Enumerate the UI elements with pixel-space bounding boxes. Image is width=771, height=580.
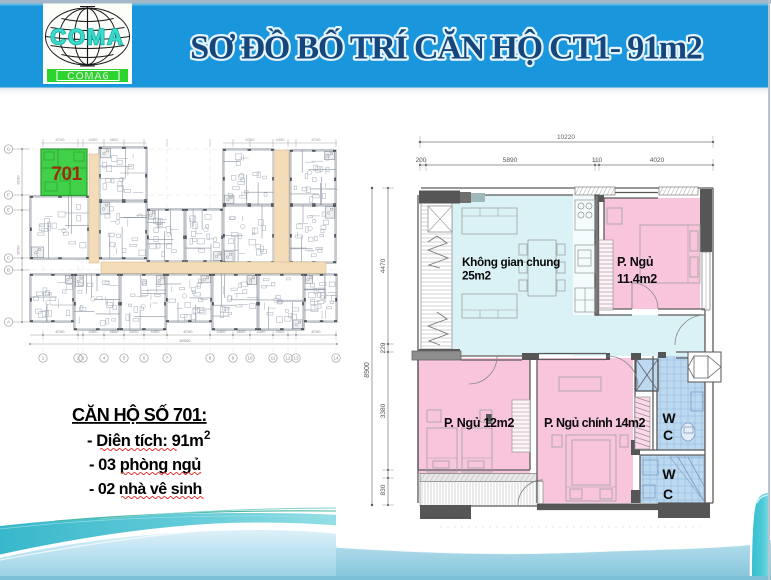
svg-text:4400: 4400 bbox=[276, 137, 286, 142]
svg-text:8900: 8900 bbox=[364, 362, 371, 378]
svg-text:P. Ngủ: P. Ngủ bbox=[617, 255, 653, 269]
svg-text:110: 110 bbox=[592, 157, 603, 164]
svg-text:4600: 4600 bbox=[237, 329, 247, 334]
svg-text:W: W bbox=[662, 466, 676, 482]
svg-text:6: 6 bbox=[143, 356, 146, 361]
svg-text:P. Ngủ 12m2: P. Ngủ 12m2 bbox=[444, 416, 514, 430]
svg-text:4600: 4600 bbox=[110, 329, 120, 334]
svg-text:- 02 nhà vê sinh: - 02 nhà vê sinh bbox=[89, 481, 202, 498]
svg-text:A: A bbox=[7, 320, 10, 325]
svg-text:8700: 8700 bbox=[56, 329, 66, 334]
svg-text:C: C bbox=[7, 256, 11, 261]
svg-text:8700: 8700 bbox=[184, 329, 194, 334]
svg-text:C: C bbox=[663, 427, 673, 443]
svg-text:E: E bbox=[7, 208, 10, 213]
svg-text:701: 701 bbox=[51, 164, 82, 185]
svg-text:60000: 60000 bbox=[179, 338, 191, 343]
svg-text:8700: 8700 bbox=[312, 329, 322, 334]
svg-text:1: 1 bbox=[42, 356, 45, 361]
svg-text:10: 10 bbox=[247, 356, 253, 361]
svg-text:B: B bbox=[7, 268, 10, 273]
svg-text:25m2: 25m2 bbox=[462, 269, 492, 283]
svg-text:4400: 4400 bbox=[89, 329, 99, 334]
svg-text:8700: 8700 bbox=[16, 245, 21, 255]
svg-text:4600: 4600 bbox=[110, 137, 120, 142]
svg-text:2000: 2000 bbox=[276, 329, 286, 334]
svg-text:830: 830 bbox=[380, 484, 387, 495]
svg-text:4400: 4400 bbox=[217, 329, 227, 334]
svg-text:12: 12 bbox=[285, 356, 291, 361]
svg-text:4400: 4400 bbox=[151, 329, 161, 334]
svg-text:G: G bbox=[7, 147, 11, 152]
svg-text:200: 200 bbox=[416, 157, 427, 164]
svg-text:11.4m2: 11.4m2 bbox=[617, 272, 657, 286]
svg-text:8700: 8700 bbox=[312, 137, 322, 142]
svg-text:5890: 5890 bbox=[503, 157, 518, 164]
svg-text:2: 2 bbox=[204, 430, 210, 442]
svg-text:4020: 4020 bbox=[650, 157, 665, 164]
svg-text:3: 3 bbox=[82, 356, 85, 361]
svg-text:F: F bbox=[7, 193, 10, 198]
svg-text:7: 7 bbox=[166, 356, 169, 361]
svg-text:Không gian chung: Không gian chung bbox=[462, 255, 560, 269]
svg-text:COMA6: COMA6 bbox=[67, 71, 109, 83]
svg-text:COMA: COMA bbox=[50, 25, 124, 50]
svg-text:8700: 8700 bbox=[246, 137, 256, 142]
svg-text:4: 4 bbox=[103, 356, 106, 361]
svg-text:P. Ngủ chính 14m2: P. Ngủ chính 14m2 bbox=[544, 416, 645, 430]
svg-text:4020: 4020 bbox=[130, 329, 140, 334]
svg-text:11: 11 bbox=[271, 356, 276, 361]
svg-text:8: 8 bbox=[209, 356, 212, 361]
svg-text:SƠ ĐỒ BỐ TRÍ CĂN HỘ CT1- 91m2: SƠ ĐỒ BỐ TRÍ CĂN HỘ CT1- 91m2 bbox=[190, 28, 702, 67]
svg-text:4400: 4400 bbox=[257, 329, 267, 334]
svg-text:8700: 8700 bbox=[56, 137, 66, 142]
svg-text:5: 5 bbox=[123, 356, 126, 361]
svg-text:8100: 8100 bbox=[16, 175, 21, 185]
svg-text:10220: 10220 bbox=[557, 134, 575, 141]
svg-text:- Diên tích: 91m: - Diên tích: 91m bbox=[87, 432, 203, 450]
svg-text:3380: 3380 bbox=[380, 403, 387, 418]
svg-text:4400: 4400 bbox=[89, 137, 99, 142]
svg-text:- 03 phòng ngủ: - 03 phòng ngủ bbox=[89, 456, 201, 474]
svg-text:13: 13 bbox=[293, 356, 299, 361]
svg-text:W: W bbox=[662, 410, 676, 426]
svg-text:14: 14 bbox=[333, 356, 339, 361]
svg-text:4470: 4470 bbox=[380, 258, 387, 273]
svg-text:CĂN HỘ SỐ 701:: CĂN HỘ SỐ 701: bbox=[72, 404, 207, 425]
svg-text:C: C bbox=[663, 486, 673, 502]
svg-text:220: 220 bbox=[380, 342, 387, 353]
svg-text:9: 9 bbox=[232, 356, 235, 361]
